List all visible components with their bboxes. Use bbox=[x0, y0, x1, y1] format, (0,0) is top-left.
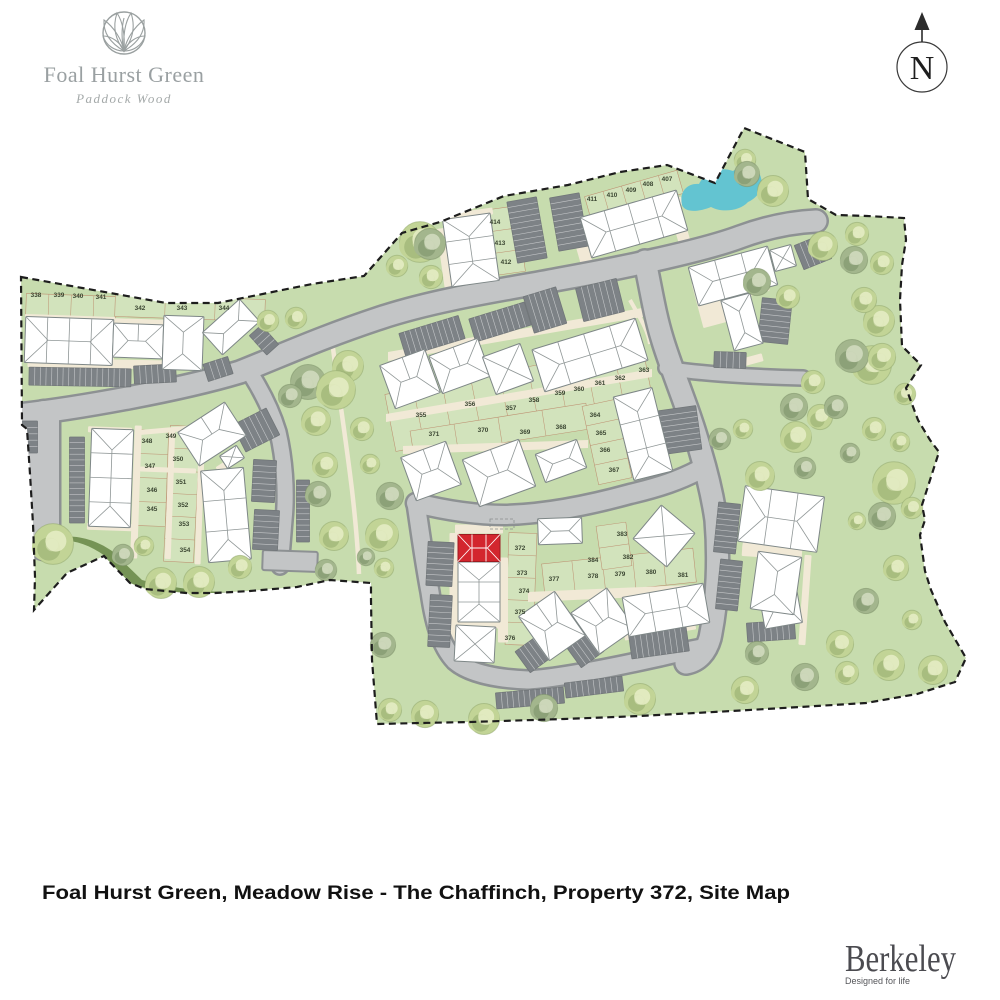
svg-text:344: 344 bbox=[219, 305, 230, 312]
svg-text:349: 349 bbox=[166, 433, 177, 440]
svg-text:357: 357 bbox=[506, 405, 517, 412]
svg-text:413: 413 bbox=[495, 240, 506, 247]
svg-text:384: 384 bbox=[588, 557, 599, 564]
svg-text:343: 343 bbox=[177, 305, 188, 312]
svg-text:361: 361 bbox=[595, 380, 606, 387]
svg-text:380: 380 bbox=[646, 569, 657, 576]
svg-text:Paddock Wood: Paddock Wood bbox=[75, 91, 172, 106]
svg-text:375: 375 bbox=[515, 609, 526, 616]
svg-text:409: 409 bbox=[626, 187, 637, 194]
svg-text:410: 410 bbox=[607, 192, 618, 199]
svg-text:381: 381 bbox=[678, 572, 689, 579]
svg-text:382: 382 bbox=[623, 554, 634, 561]
svg-text:367: 367 bbox=[609, 467, 620, 474]
svg-text:366: 366 bbox=[600, 447, 611, 454]
svg-text:414: 414 bbox=[490, 219, 501, 226]
svg-text:346: 346 bbox=[147, 487, 158, 494]
svg-text:341: 341 bbox=[96, 294, 107, 301]
svg-text:338: 338 bbox=[31, 292, 42, 299]
svg-text:372: 372 bbox=[515, 545, 526, 552]
svg-text:Designed for life: Designed for life bbox=[845, 976, 910, 986]
svg-text:383: 383 bbox=[617, 531, 628, 538]
svg-text:368: 368 bbox=[556, 424, 567, 431]
svg-text:362: 362 bbox=[615, 375, 626, 382]
svg-text:352: 352 bbox=[178, 502, 189, 509]
svg-text:N: N bbox=[910, 50, 935, 87]
svg-text:354: 354 bbox=[180, 547, 191, 554]
svg-text:369: 369 bbox=[520, 429, 531, 436]
svg-text:355: 355 bbox=[416, 412, 427, 419]
svg-text:377: 377 bbox=[549, 576, 560, 583]
svg-text:370: 370 bbox=[478, 427, 489, 434]
svg-text:342: 342 bbox=[135, 305, 146, 312]
svg-text:358: 358 bbox=[529, 397, 540, 404]
svg-text:Foal Hurst Green: Foal Hurst Green bbox=[44, 62, 205, 87]
svg-text:Foal Hurst Green, Meadow Rise: Foal Hurst Green, Meadow Rise - The Chaf… bbox=[42, 882, 790, 904]
svg-text:373: 373 bbox=[517, 570, 528, 577]
svg-text:356: 356 bbox=[465, 401, 476, 408]
svg-text:340: 340 bbox=[73, 293, 84, 300]
svg-text:411: 411 bbox=[587, 196, 598, 203]
svg-text:347: 347 bbox=[145, 463, 156, 470]
svg-text:351: 351 bbox=[176, 479, 187, 486]
svg-text:412: 412 bbox=[501, 259, 512, 266]
svg-text:Berkeley: Berkeley bbox=[845, 938, 956, 980]
svg-text:379: 379 bbox=[615, 571, 626, 578]
svg-text:378: 378 bbox=[588, 573, 599, 580]
svg-text:359: 359 bbox=[555, 390, 566, 397]
svg-text:374: 374 bbox=[519, 588, 530, 595]
svg-text:376: 376 bbox=[505, 635, 516, 642]
svg-text:407: 407 bbox=[662, 176, 673, 183]
svg-text:365: 365 bbox=[596, 430, 607, 437]
svg-text:348: 348 bbox=[142, 438, 153, 445]
svg-text:360: 360 bbox=[574, 386, 585, 393]
svg-text:353: 353 bbox=[179, 521, 190, 528]
svg-text:408: 408 bbox=[643, 181, 654, 188]
svg-text:350: 350 bbox=[173, 456, 184, 463]
svg-text:345: 345 bbox=[147, 506, 158, 513]
svg-text:364: 364 bbox=[590, 412, 601, 419]
svg-text:371: 371 bbox=[429, 431, 440, 438]
svg-text:363: 363 bbox=[639, 367, 650, 374]
svg-text:339: 339 bbox=[54, 292, 65, 299]
